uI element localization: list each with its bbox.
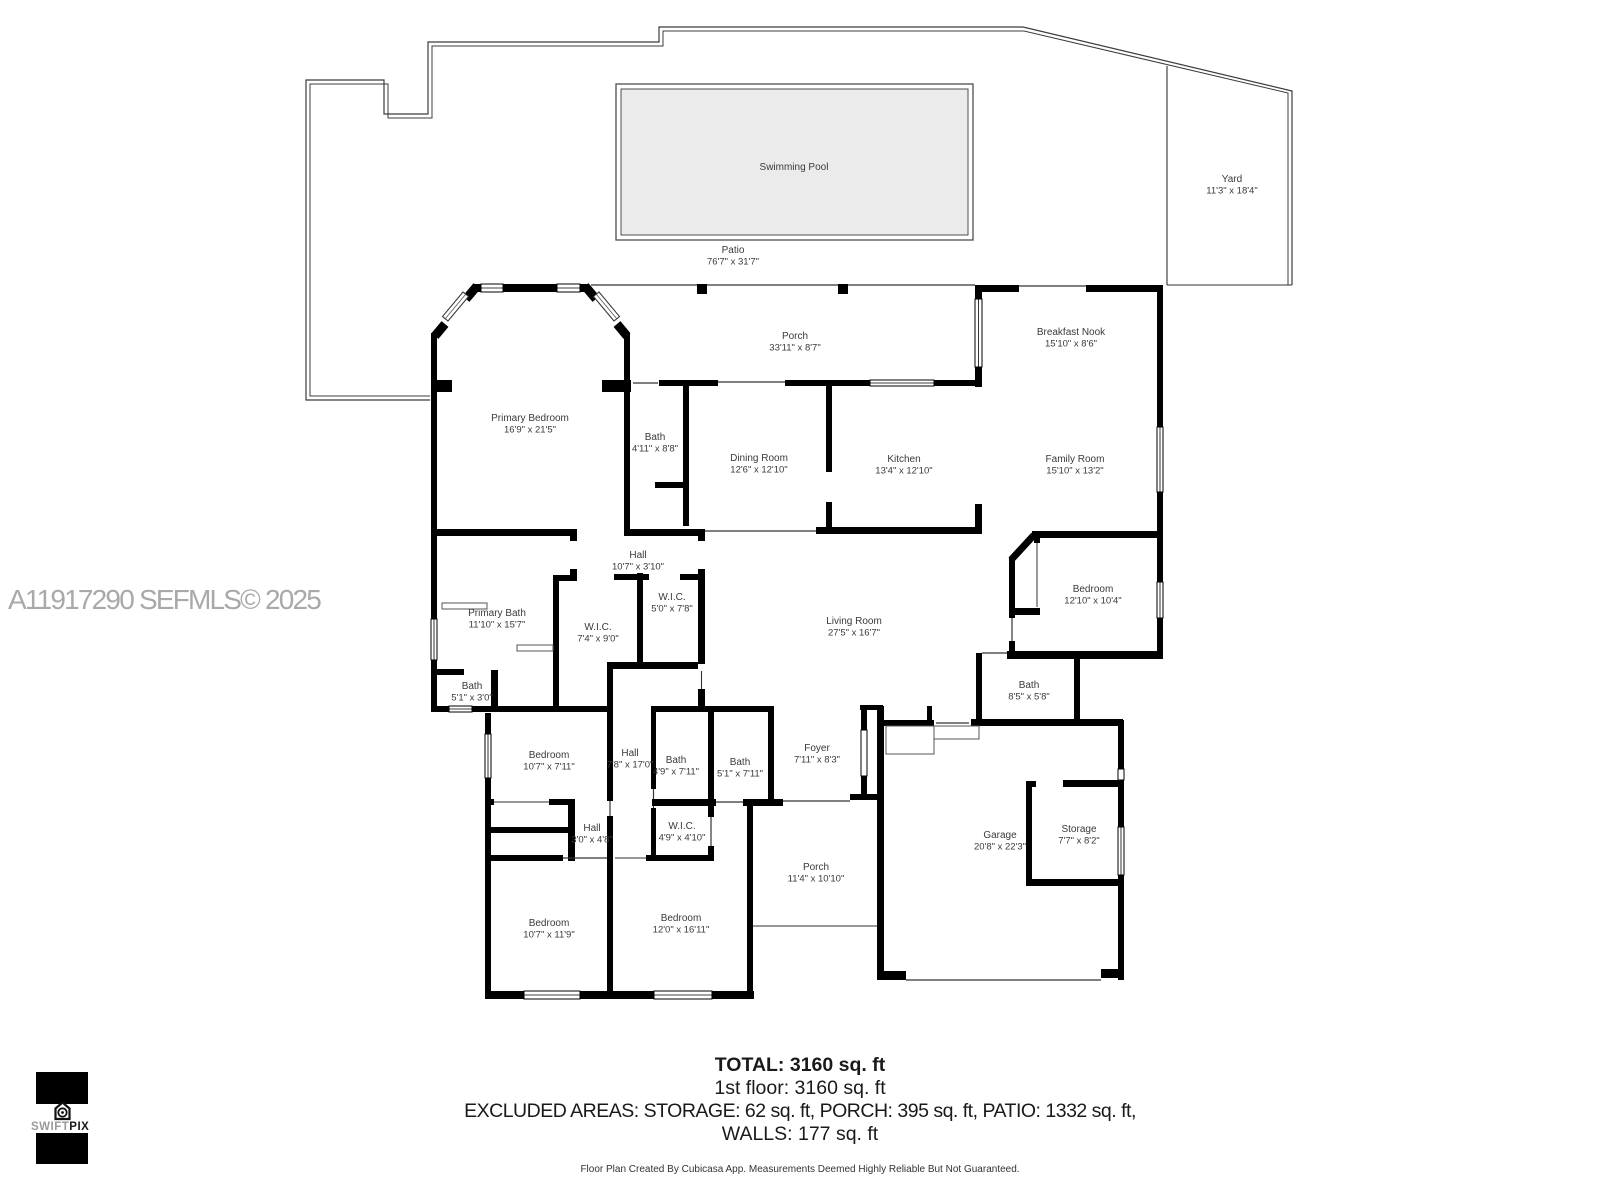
svg-text:Family Room: Family Room <box>1046 454 1105 465</box>
svg-text:Bath: Bath <box>645 432 666 443</box>
svg-text:Hall: Hall <box>583 823 600 834</box>
svg-text:Patio: Patio <box>722 245 745 256</box>
svg-text:76'7" x 31'7": 76'7" x 31'7" <box>707 257 759 268</box>
svg-text:Kitchen: Kitchen <box>887 454 920 465</box>
svg-text:Bedroom: Bedroom <box>661 913 702 924</box>
svg-text:15'10" x 8'6": 15'10" x 8'6" <box>1045 339 1097 350</box>
svg-text:12'6" x 12'10": 12'6" x 12'10" <box>730 465 787 476</box>
svg-text:EXCLUDED AREAS: STORAGE: 62 sq: EXCLUDED AREAS: STORAGE: 62 sq. ft, PORC… <box>464 1100 1136 1122</box>
svg-text:Bath: Bath <box>730 757 751 768</box>
svg-text:33'11" x 8'7": 33'11" x 8'7" <box>769 343 820 354</box>
svg-text:Bath: Bath <box>666 755 687 766</box>
svg-text:5'1" x 7'11": 5'1" x 7'11" <box>717 769 763 780</box>
svg-text:Swimming Pool: Swimming Pool <box>760 162 829 173</box>
svg-text:7'11" x 8'3": 7'11" x 8'3" <box>794 755 840 766</box>
svg-text:W.I.C.: W.I.C. <box>584 622 611 633</box>
svg-text:8'5" x 5'8": 8'5" x 5'8" <box>1008 692 1050 703</box>
svg-text:10'7" x 11'9": 10'7" x 11'9" <box>523 930 574 941</box>
svg-text:Bedroom: Bedroom <box>1073 584 1114 595</box>
svg-text:5'1" x 3'0": 5'1" x 3'0" <box>451 693 493 704</box>
svg-text:7'4" x 9'0": 7'4" x 9'0" <box>577 634 619 645</box>
svg-text:Yard: Yard <box>1222 174 1242 185</box>
svg-text:Dining Room: Dining Room <box>730 453 788 464</box>
svg-text:15'10" x 13'2": 15'10" x 13'2" <box>1046 466 1103 477</box>
svg-text:Floor Plan Created By Cubicasa: Floor Plan Created By Cubicasa App. Meas… <box>580 1164 1019 1175</box>
svg-text:27'5" x 16'7": 27'5" x 16'7" <box>828 628 880 639</box>
svg-text:12'10" x 10'4": 12'10" x 10'4" <box>1064 596 1121 607</box>
svg-text:Bedroom: Bedroom <box>529 750 570 761</box>
svg-text:Living Room: Living Room <box>826 616 882 627</box>
svg-text:Garage: Garage <box>983 830 1017 841</box>
svg-text:16'9" x 21'5": 16'9" x 21'5" <box>504 425 556 436</box>
svg-text:Foyer: Foyer <box>804 743 830 754</box>
svg-text:11'3" x 18'4": 11'3" x 18'4" <box>1206 186 1257 197</box>
svg-text:W.I.C.: W.I.C. <box>658 592 685 603</box>
svg-text:Bath: Bath <box>462 681 483 692</box>
svg-text:W.I.C.: W.I.C. <box>668 821 695 832</box>
svg-text:11'10" x 15'7": 11'10" x 15'7" <box>469 620 526 631</box>
svg-text:Storage: Storage <box>1061 824 1096 835</box>
svg-text:4'9" x 4'10": 4'9" x 4'10" <box>659 833 706 844</box>
svg-text:10'7" x 3'10": 10'7" x 3'10" <box>612 562 664 573</box>
svg-text:Bedroom: Bedroom <box>529 918 570 929</box>
svg-text:7'8" x 17'0": 7'8" x 17'0" <box>607 760 654 771</box>
svg-text:13'4" x 12'10": 13'4" x 12'10" <box>875 466 932 477</box>
svg-text:1st floor: 3160 sq. ft: 1st floor: 3160 sq. ft <box>714 1077 886 1099</box>
svg-text:7'7" x 8'2": 7'7" x 8'2" <box>1058 836 1100 847</box>
svg-text:Hall: Hall <box>621 748 638 759</box>
svg-text:Bath: Bath <box>1019 680 1040 691</box>
svg-text:SWIFTPIX: SWIFTPIX <box>31 1121 89 1133</box>
svg-text:12'0" x 16'11": 12'0" x 16'11" <box>653 925 710 936</box>
svg-text:11'4" x 10'10": 11'4" x 10'10" <box>788 874 845 885</box>
svg-text:Breakfast Nook: Breakfast Nook <box>1037 327 1106 338</box>
svg-text:Primary Bath: Primary Bath <box>468 608 526 619</box>
svg-text:TOTAL: 3160 sq. ft: TOTAL: 3160 sq. ft <box>715 1054 886 1076</box>
svg-text:A11917290 SEFMLS© 2025: A11917290 SEFMLS© 2025 <box>8 584 321 615</box>
svg-text:3'0" x 4'8": 3'0" x 4'8" <box>571 835 613 846</box>
svg-text:5'0" x 7'8": 5'0" x 7'8" <box>651 604 693 615</box>
svg-text:10'7" x 7'11": 10'7" x 7'11" <box>523 762 574 773</box>
svg-text:WALLS: 177 sq. ft: WALLS: 177 sq. ft <box>722 1123 879 1145</box>
svg-text:Porch: Porch <box>803 862 829 873</box>
svg-text:Primary Bedroom: Primary Bedroom <box>491 413 569 424</box>
svg-text:Porch: Porch <box>782 331 808 342</box>
svg-text:20'8" x 22'3": 20'8" x 22'3" <box>974 842 1026 853</box>
svg-text:Hall: Hall <box>629 550 646 561</box>
svg-text:4'9" x 7'11": 4'9" x 7'11" <box>653 767 699 778</box>
svg-text:4'11" x 8'8": 4'11" x 8'8" <box>632 444 678 455</box>
